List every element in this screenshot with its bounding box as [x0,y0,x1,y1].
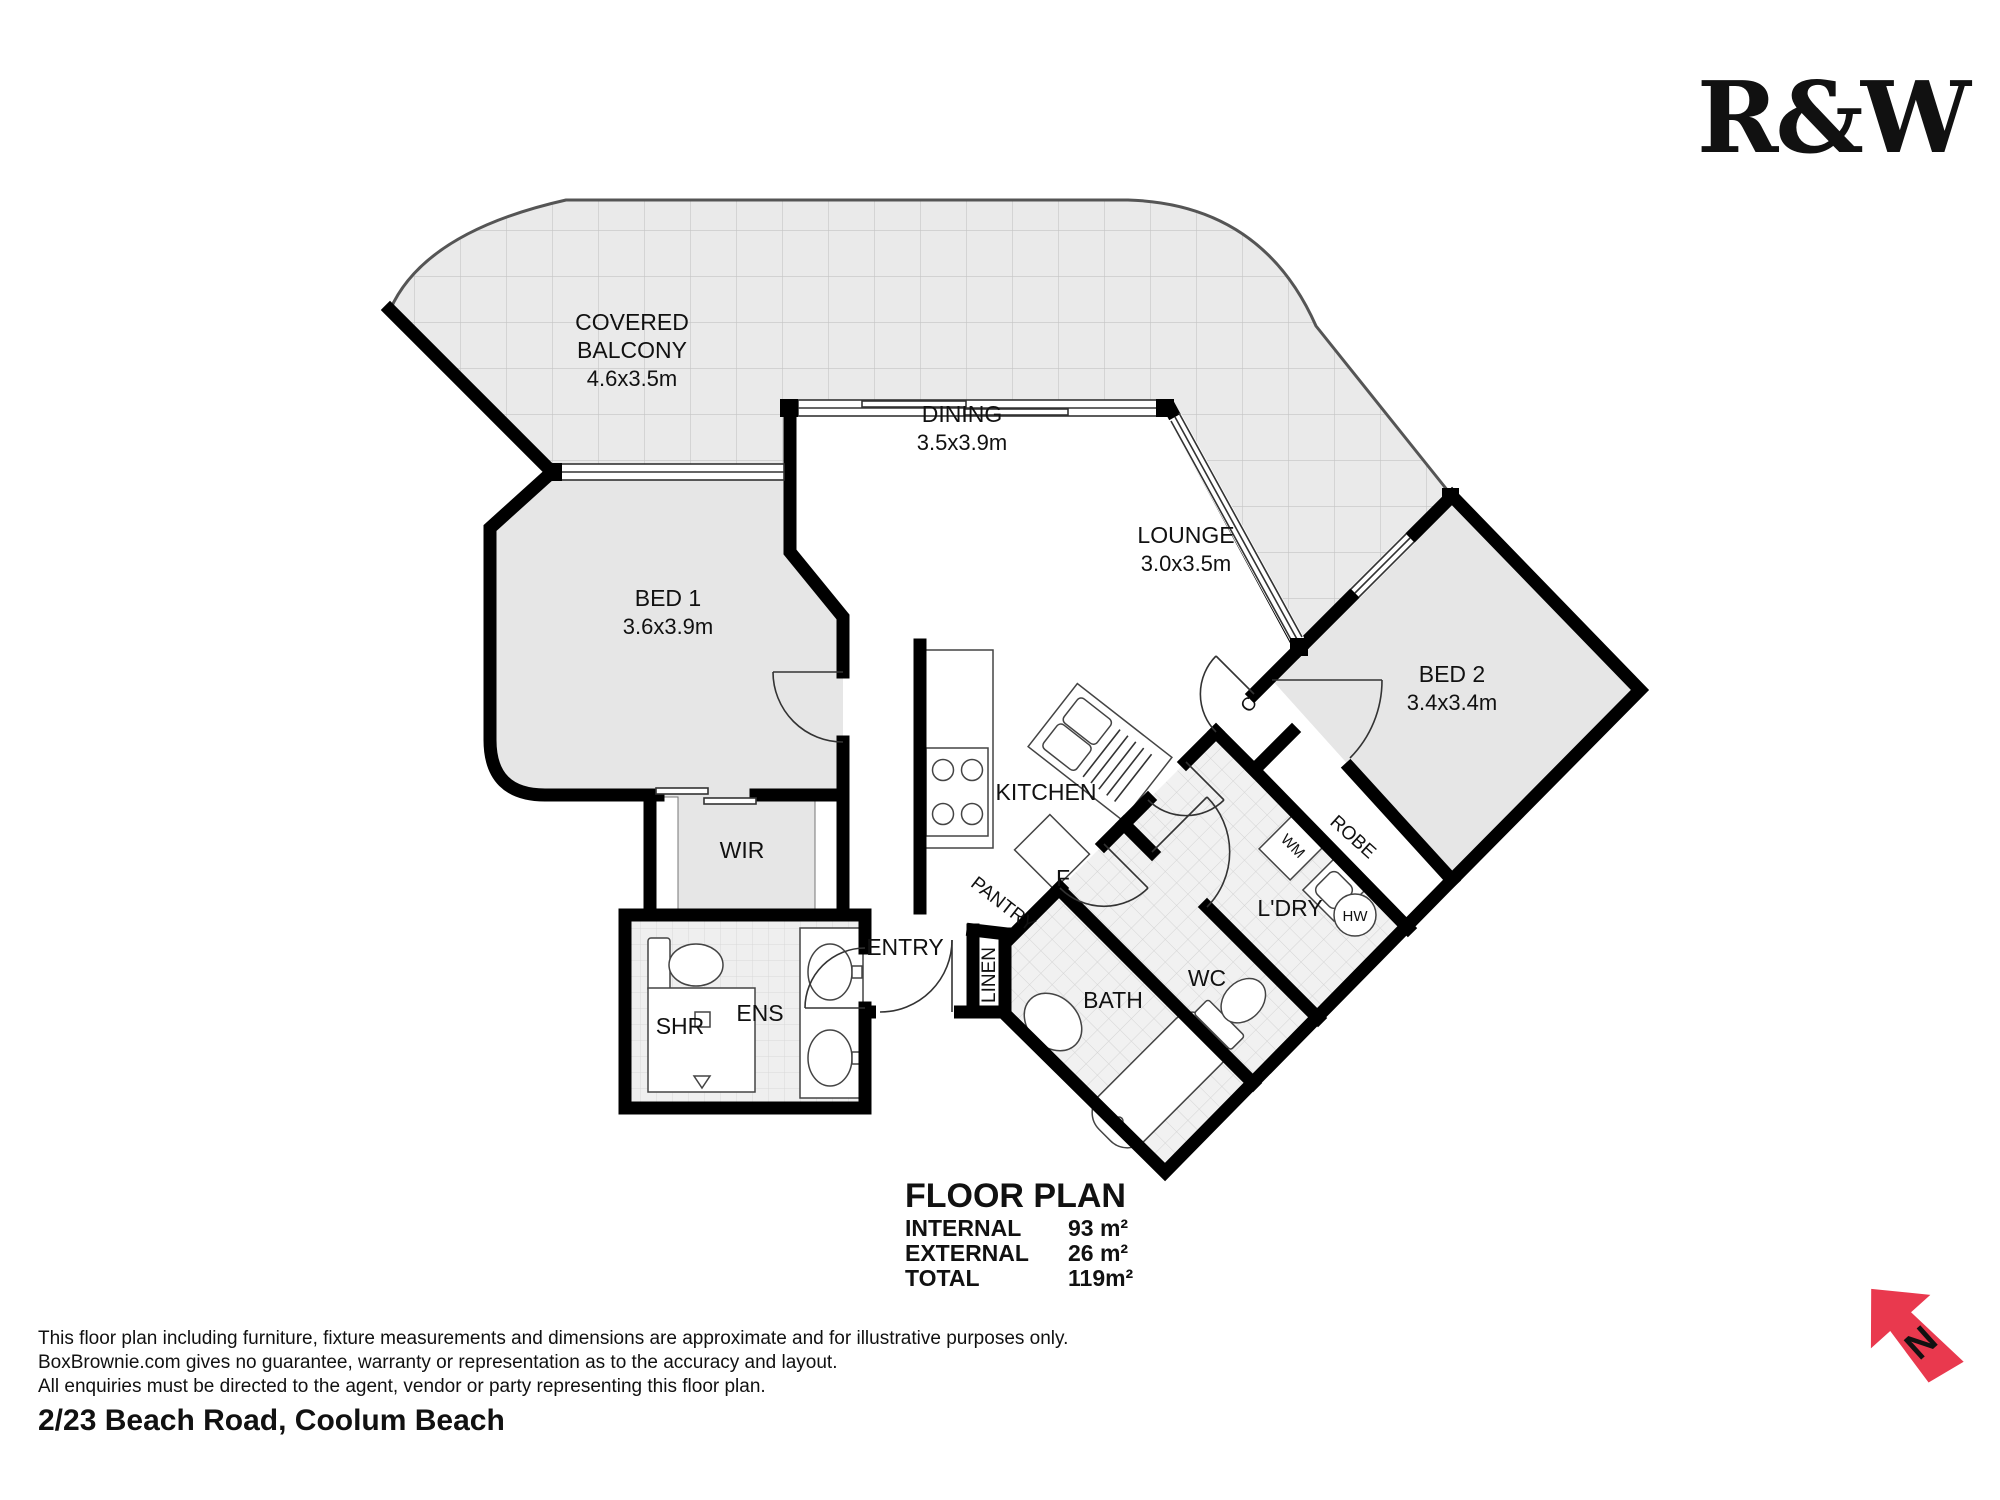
bed2-label: BED 2 [1419,661,1485,687]
internal-value: 93 m² [1068,1215,1128,1241]
floor-plan-page: COVERED BALCONY 4.6x3.5m DINING 3.5x3.9m… [0,0,2000,1500]
balcony-label-1: COVERED [575,309,689,335]
address: 2/23 Beach Road, Coolum Beach [38,1404,505,1437]
north-arrow: N [1841,1262,1978,1402]
ensuite-label: ENS [736,1000,783,1026]
wc-label: WC [1188,965,1226,991]
hw-label: HW [1343,908,1369,925]
laundry-label: L'DRY [1257,895,1322,921]
dining-label: DINING [922,401,1003,427]
area-summary: FLOOR PLAN INTERNAL 93 m² EXTERNAL 26 m²… [905,1177,1134,1291]
linen-label: LINEN [979,947,1000,1003]
external-label: EXTERNAL [905,1240,1029,1266]
entry-label: ENTRY [866,934,944,960]
total-label: TOTAL [905,1265,980,1291]
fridge-label: F [1056,865,1070,891]
bed1-window [556,464,784,480]
stove-icon [926,748,988,836]
summary-title: FLOOR PLAN [905,1177,1126,1215]
external-value: 26 m² [1068,1240,1128,1266]
bath-label: BATH [1083,987,1143,1013]
rw-logo: R&W [1697,61,1973,176]
balcony-dims: 4.6x3.5m [587,366,678,391]
balcony-label-2: BALCONY [577,337,687,363]
bed1-label: BED 1 [635,585,701,611]
disclaimer-line-3: All enquiries must be directed to the ag… [38,1376,766,1397]
lounge-label: LOUNGE [1137,522,1234,548]
lounge-dims: 3.0x3.5m [1141,551,1232,576]
bed2-dims: 3.4x3.4m [1407,690,1498,715]
total-value: 119m² [1068,1265,1134,1291]
internal-label: INTERNAL [905,1215,1021,1241]
floor-plan-canvas: COVERED BALCONY 4.6x3.5m DINING 3.5x3.9m… [0,0,2000,1500]
bed1-dims: 3.6x3.9m [623,614,714,639]
dining-dims: 3.5x3.9m [917,430,1008,455]
shower-label: SHR [656,1013,705,1039]
disclaimer: This floor plan including furniture, fix… [38,1328,1068,1397]
wir-label: WIR [720,837,765,863]
disclaimer-line-2: BoxBrownie.com gives no guarantee, warra… [38,1352,838,1373]
disclaimer-line-1: This floor plan including furniture, fix… [38,1328,1068,1349]
kitchen-label: KITCHEN [996,779,1097,805]
